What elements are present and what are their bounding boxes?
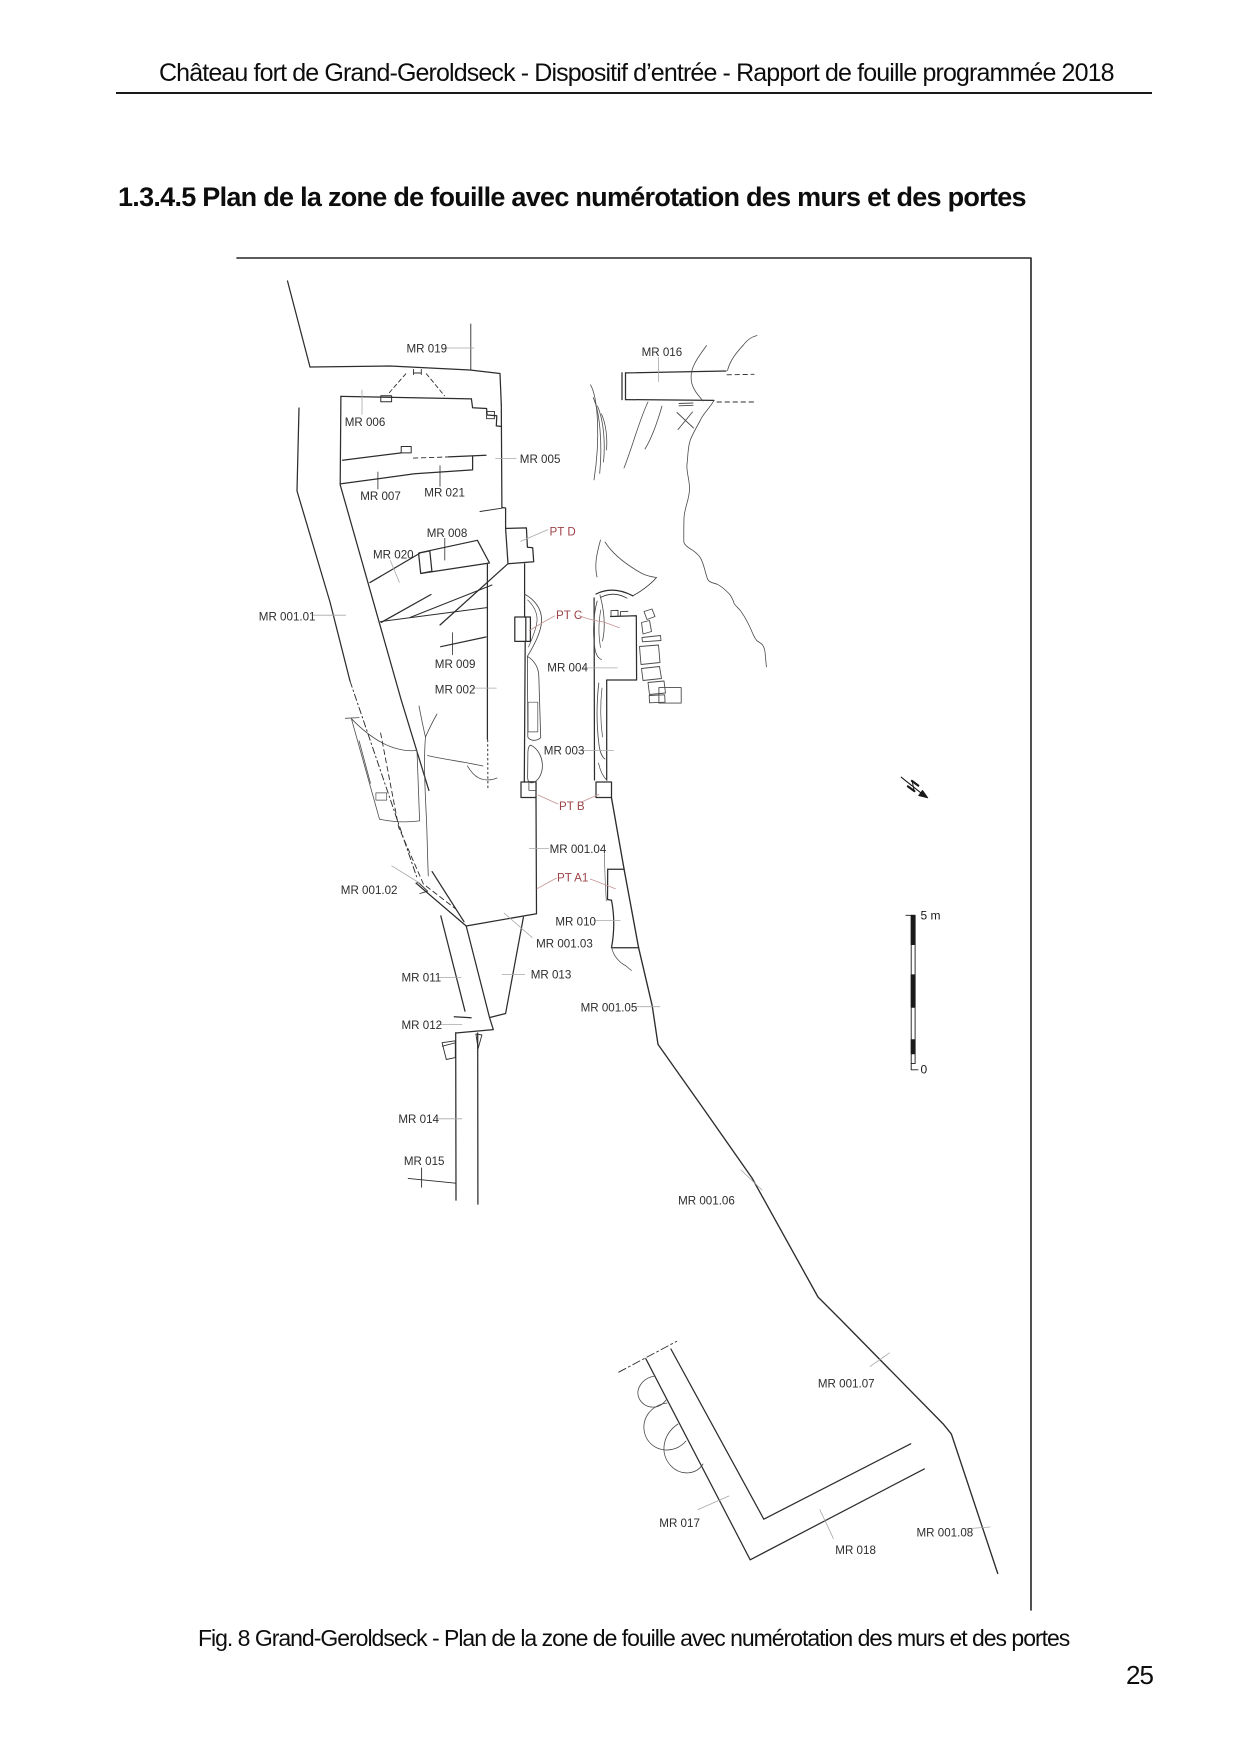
svg-text:MR 005: MR 005 [520, 453, 561, 466]
svg-text:MR 010: MR 010 [555, 916, 596, 929]
svg-text:MR 004: MR 004 [547, 662, 588, 675]
svg-text:PT C: PT C [556, 609, 582, 622]
svg-text:MR 001.05: MR 001.05 [581, 1002, 638, 1015]
svg-text:PT D: PT D [550, 526, 576, 539]
svg-text:MR 006: MR 006 [345, 416, 386, 429]
svg-text:MR 001.03: MR 001.03 [536, 938, 593, 951]
svg-text:MR 009: MR 009 [435, 658, 476, 671]
svg-text:MR 001.08: MR 001.08 [917, 1527, 974, 1540]
svg-text:MR 007: MR 007 [360, 490, 401, 503]
svg-text:MR 001.04: MR 001.04 [550, 843, 607, 856]
svg-text:MR 014: MR 014 [398, 1113, 439, 1126]
svg-text:MR 015: MR 015 [404, 1155, 445, 1168]
svg-text:MR 016: MR 016 [642, 346, 683, 359]
svg-text:0: 0 [921, 1063, 928, 1077]
svg-text:MR 013: MR 013 [531, 969, 572, 982]
svg-text:MR 012: MR 012 [402, 1019, 443, 1032]
svg-text:MR 002: MR 002 [435, 684, 476, 697]
svg-text:PT A1: PT A1 [557, 872, 588, 885]
svg-text:PT B: PT B [559, 800, 585, 813]
svg-text:5 m: 5 m [921, 909, 941, 923]
svg-text:MR 018: MR 018 [835, 1544, 876, 1557]
svg-text:MR 001.06: MR 001.06 [678, 1195, 735, 1208]
svg-text:MR 021: MR 021 [424, 487, 465, 500]
svg-text:MR 011: MR 011 [402, 972, 442, 985]
svg-text:MR 001.01: MR 001.01 [259, 611, 316, 624]
svg-text:MR 001.02: MR 001.02 [341, 884, 398, 897]
svg-text:MR 019: MR 019 [407, 343, 448, 356]
svg-text:MR 017: MR 017 [659, 1517, 700, 1530]
svg-text:MR 003: MR 003 [544, 745, 585, 758]
svg-text:MR 020: MR 020 [373, 549, 414, 562]
svg-text:MR 001.07: MR 001.07 [818, 1378, 875, 1391]
svg-text:MR 008: MR 008 [427, 527, 468, 540]
